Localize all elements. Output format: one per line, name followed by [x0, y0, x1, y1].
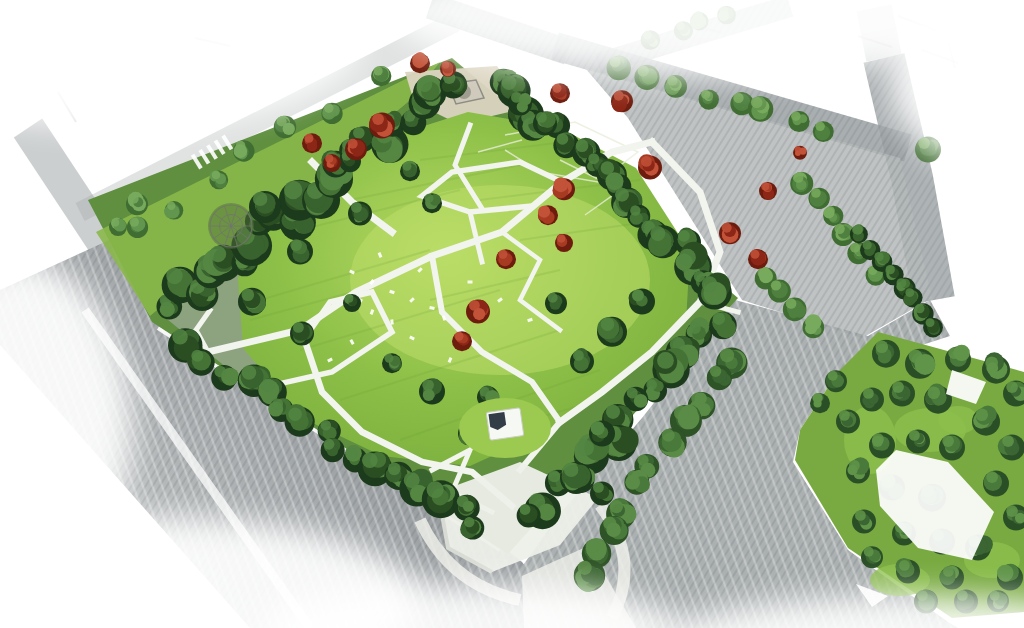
park-aerial-rendering [0, 0, 1024, 628]
pavilion [459, 398, 551, 458]
lawn-speck [390, 319, 394, 324]
lawn-speck [467, 280, 472, 283]
park-rendering-canvas [0, 0, 1024, 628]
net-structure [208, 203, 254, 249]
